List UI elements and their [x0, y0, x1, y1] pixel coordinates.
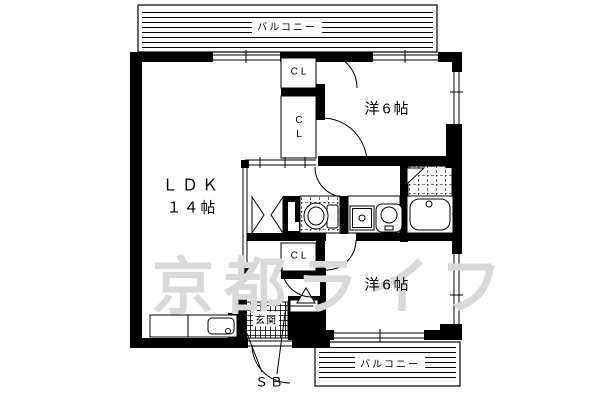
bathtub-icon [407, 196, 460, 233]
shoe-box-label: ＳＢ [255, 372, 285, 391]
balcony-bottom-label: バルコニー [355, 356, 425, 371]
toilet-icon [304, 203, 338, 229]
closet-mid-label: C L [295, 114, 302, 142]
bifold-closet-doors [252, 197, 283, 233]
closet-top-label: CL [291, 67, 310, 78]
ldk-size: １４帖 [162, 198, 222, 220]
genkan-label: 玄関 [253, 312, 279, 327]
closet-mid-line2: L [295, 128, 302, 142]
floor-plan: 京都ライフ バルコニー バルコニー ＬＤＫ １４帖 洋6帖 洋6帖 CL C L… [0, 0, 600, 400]
closet-bottom-label: CL [291, 251, 310, 262]
washbasin-icon [376, 204, 402, 232]
balcony-top-label: バルコニー [252, 19, 322, 34]
floor-plan-drawing [0, 0, 600, 400]
room-bottom-label: 洋6帖 [364, 274, 411, 295]
closet-mid-line1: C [295, 114, 302, 128]
ldk-label: ＬＤＫ １４帖 [162, 175, 222, 220]
genkan-step-triangle [297, 288, 315, 303]
room-top-label: 洋6帖 [364, 98, 411, 119]
washer-pan-icon [350, 206, 374, 230]
kitchen-counter [150, 315, 237, 337]
ldk-name: ＬＤＫ [162, 175, 222, 198]
